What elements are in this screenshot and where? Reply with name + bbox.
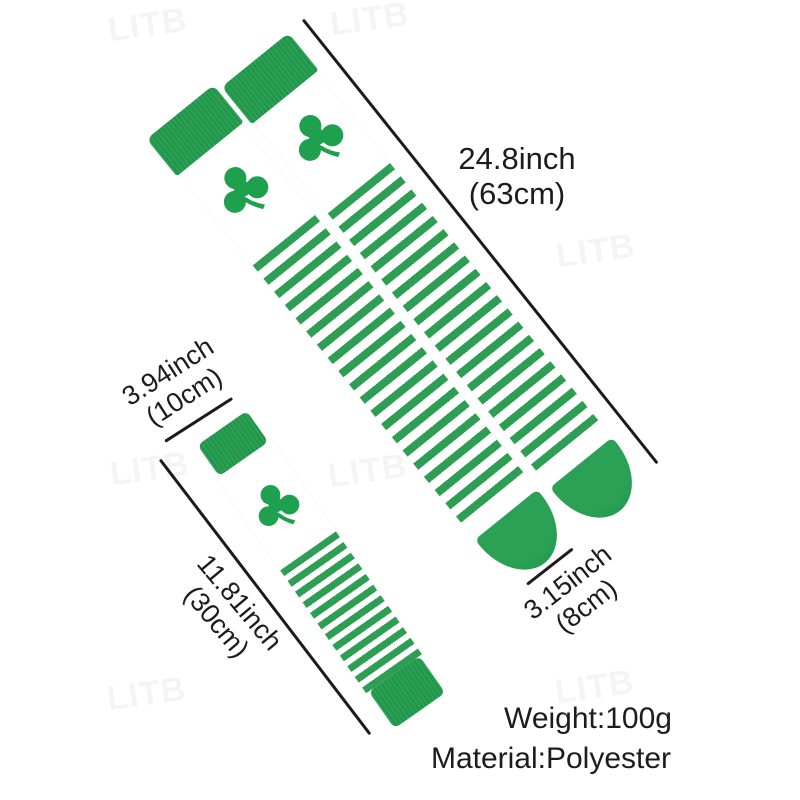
brand-watermark: LITB [105, 670, 189, 720]
brand-watermark: LITB [328, 0, 412, 44]
label-sock-length-inch: 24.8inch [417, 142, 617, 177]
brand-watermark: LITB [326, 447, 410, 497]
shamrock-icon [277, 97, 359, 179]
brand-watermark: LITB [554, 227, 638, 277]
product-dimension-diagram: LITB LITB LITB LITB LITB LITB LITB [0, 0, 800, 800]
spec-material: Material:Polyester [401, 742, 701, 776]
label-sock-length: 24.8inch (63cm) [417, 142, 617, 211]
spec-weight: Weight:100g [438, 702, 738, 736]
shamrock-icon [240, 470, 312, 542]
shamrock-icon [202, 149, 284, 231]
brand-watermark: LITB [106, 1, 190, 51]
label-sock-length-cm: (63cm) [417, 177, 617, 212]
